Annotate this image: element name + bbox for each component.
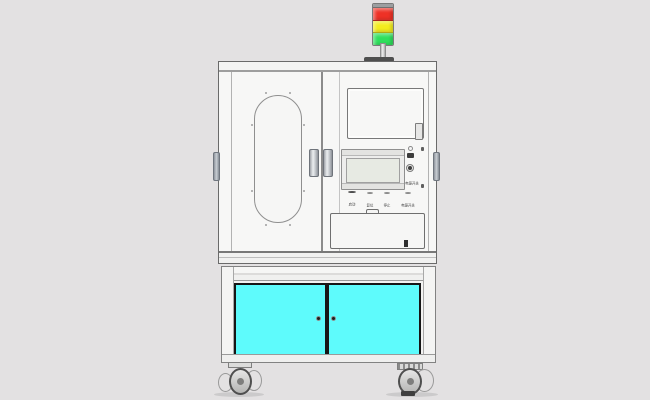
stop-button[interactable]	[384, 192, 390, 194]
start-button[interactable]	[348, 191, 356, 193]
control-panel-top-bezel	[342, 150, 404, 156]
window-screw	[265, 92, 267, 94]
power-button-label: 电源开关	[392, 195, 424, 214]
window-screw	[303, 190, 305, 192]
lower-cabinet-top-rail	[222, 267, 435, 281]
window-screw	[265, 224, 267, 226]
lower-cabinet-door-left[interactable]	[234, 283, 327, 357]
drawer-panel[interactable]	[330, 213, 425, 249]
cabinet-frame-left	[219, 72, 232, 251]
cabinet-bottom-rail	[219, 251, 436, 263]
tower-light-red	[373, 8, 393, 21]
side-handle-right[interactable]	[433, 152, 440, 181]
left-door-handle[interactable]	[309, 149, 319, 177]
caster-front-right	[389, 361, 435, 397]
cabinet-top-rail	[219, 62, 436, 72]
caster-hub	[237, 378, 244, 385]
panel-hinge	[421, 147, 424, 151]
right-door-handle[interactable]	[323, 149, 333, 177]
panel-hinge	[421, 184, 424, 188]
viewing-window	[254, 95, 302, 223]
drawer-lock	[404, 240, 408, 247]
machine-render-scene: 电源开关 启动 复位 停止 电源开关	[0, 0, 650, 400]
upper-access-window	[347, 88, 424, 139]
control-panel-bottom-bezel	[342, 183, 404, 189]
leveling-foot	[401, 391, 415, 396]
signal-tower	[372, 3, 394, 46]
caster-wheel	[229, 368, 252, 395]
window-screw	[303, 124, 305, 126]
cabinet-knob-left[interactable]	[316, 316, 321, 321]
usb-port[interactable]	[407, 153, 414, 158]
power-button[interactable]	[405, 192, 411, 194]
key-switch-label: 电源开关	[396, 173, 426, 192]
reset-button[interactable]	[367, 192, 373, 194]
window-screw	[289, 92, 291, 94]
caster-front-left	[218, 361, 264, 397]
cabinet-knob-right[interactable]	[331, 316, 336, 321]
tower-light-yellow	[373, 21, 393, 34]
window-screw	[251, 124, 253, 126]
lower-cabinet	[221, 266, 436, 363]
upper-window-handle[interactable]	[415, 123, 423, 140]
lower-cabinet-door-right[interactable]	[327, 283, 421, 357]
window-screw	[251, 190, 253, 192]
key-switch[interactable]	[406, 164, 414, 172]
power-button-group: 电源开关	[396, 192, 420, 208]
key-switch-core	[408, 166, 412, 170]
caster-hub	[407, 378, 414, 385]
lower-cabinet-post-right	[423, 267, 435, 362]
power-indicator	[408, 146, 413, 151]
window-screw	[289, 224, 291, 226]
lower-cabinet-post-left	[222, 267, 234, 362]
signal-tower-pole	[380, 43, 386, 58]
cabinet-bottom-rail-line	[219, 257, 436, 258]
side-handle-left[interactable]	[213, 152, 220, 181]
hmi-screen[interactable]	[346, 158, 400, 183]
